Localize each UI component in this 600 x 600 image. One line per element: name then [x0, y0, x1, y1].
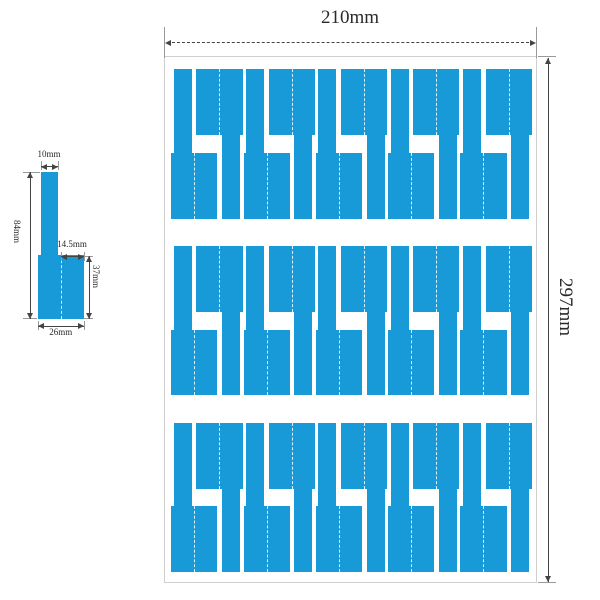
- label-stem: [294, 489, 312, 573]
- label-stem: [222, 312, 240, 396]
- fold-line: [509, 246, 510, 312]
- fold-line: [219, 69, 220, 135]
- dim-label-sheet-width: 210mm: [285, 8, 415, 29]
- fold-line: [339, 330, 340, 396]
- label-sheet-content: [165, 57, 536, 582]
- arrowhead-left-icon: [165, 40, 171, 46]
- cable-label-up: [413, 69, 459, 218]
- dimension-line-84mm: [30, 172, 31, 319]
- label-stem: [222, 135, 240, 219]
- fold-line: [364, 69, 365, 135]
- cable-label-up: [341, 423, 387, 572]
- label-stem: [463, 246, 481, 330]
- witness-tick: [84, 321, 85, 330]
- fold-line: [219, 423, 220, 489]
- label-stem: [439, 312, 457, 396]
- label-stem: [367, 135, 385, 219]
- cable-label-up: [486, 246, 532, 395]
- label-stem: [246, 246, 264, 330]
- cable-label-up: [196, 423, 242, 572]
- fold-line: [411, 153, 412, 219]
- fold-line: [436, 246, 437, 312]
- label-stem: [463, 69, 481, 153]
- fold-line: [339, 153, 340, 219]
- label-sheet: [164, 56, 537, 583]
- cable-label-up: [486, 423, 532, 572]
- dimension-line-210mm: [167, 42, 534, 43]
- label-stem: [318, 246, 336, 330]
- label-stem: [391, 69, 409, 153]
- cable-label-up: [196, 69, 242, 218]
- label-stem: [391, 423, 409, 507]
- label-stem: [463, 423, 481, 507]
- cable-label-up: [269, 69, 315, 218]
- cable-label-up: [269, 246, 315, 395]
- dimension-line-297mm: [548, 58, 549, 582]
- cable-label-up: [413, 246, 459, 395]
- fold-line: [483, 506, 484, 572]
- witness-tick: [58, 161, 59, 170]
- fold-line: [483, 330, 484, 396]
- label-stem: [511, 312, 529, 396]
- label-stem: [367, 489, 385, 573]
- cable-label-up: [269, 423, 315, 572]
- fold-line: [194, 506, 195, 572]
- arrowhead-left-icon: [61, 254, 67, 260]
- arrowhead-up-icon: [86, 256, 92, 262]
- label-stem: [174, 423, 192, 507]
- arrowhead-right-icon: [52, 164, 58, 170]
- label-stem: [294, 312, 312, 396]
- label-stem: [174, 246, 192, 330]
- label-stem: [439, 489, 457, 573]
- fold-line: [61, 255, 62, 320]
- label-stem: [511, 135, 529, 219]
- cable-label-up: [196, 246, 242, 395]
- fold-line: [339, 506, 340, 572]
- label-stem: [511, 489, 529, 573]
- label-stem: [294, 135, 312, 219]
- dim-label-flag-width: 26mm: [38, 328, 84, 338]
- arrowhead-up-icon: [27, 172, 33, 178]
- fold-line: [364, 423, 365, 489]
- arrowhead-left-icon: [41, 164, 47, 170]
- cable-label-up: [341, 246, 387, 395]
- arrowhead-right-icon: [78, 254, 84, 260]
- dim-label-stem-to-edge: 14.5mm: [50, 240, 94, 250]
- fold-line: [292, 246, 293, 312]
- fold-line: [292, 423, 293, 489]
- label-stem: [391, 246, 409, 330]
- fold-line: [509, 69, 510, 135]
- fold-line: [292, 69, 293, 135]
- fold-line: [219, 246, 220, 312]
- cable-label-up: [486, 69, 532, 218]
- label-stem: [246, 423, 264, 507]
- arrowhead-down-icon: [27, 313, 33, 319]
- label-stem: [318, 69, 336, 153]
- fold-line: [411, 330, 412, 396]
- arrowhead-down-icon: [86, 313, 92, 319]
- fold-line: [411, 506, 412, 572]
- dim-label-stem-width: 10mm: [27, 150, 71, 160]
- dim-label-sheet-height: 297mm: [554, 278, 575, 348]
- fold-line: [483, 153, 484, 219]
- fold-line: [194, 330, 195, 396]
- fold-line: [364, 246, 365, 312]
- label-stem: [222, 489, 240, 573]
- fold-line: [267, 330, 268, 396]
- label-stem: [318, 423, 336, 507]
- witness-tick: [538, 582, 556, 583]
- witness-tick: [538, 56, 556, 57]
- fold-line: [267, 153, 268, 219]
- witness-tick: [536, 27, 537, 58]
- single-label-diagram: 10mm 84mm 14.5mm 37mm 26mm: [0, 0, 130, 360]
- arrowhead-up-icon: [545, 58, 551, 64]
- label-stem: [439, 135, 457, 219]
- fold-line: [509, 423, 510, 489]
- fold-line: [267, 506, 268, 572]
- cable-label-up: [413, 423, 459, 572]
- arrowhead-down-icon: [545, 576, 551, 582]
- cable-label-up: [341, 69, 387, 218]
- fold-line: [436, 69, 437, 135]
- dim-label-total-height: 84mm: [11, 220, 21, 272]
- arrowhead-right-icon: [530, 40, 536, 46]
- dim-label-flag-height: 37mm: [90, 265, 100, 313]
- fold-line: [194, 153, 195, 219]
- label-stem: [174, 69, 192, 153]
- fold-line: [436, 423, 437, 489]
- label-stem: [246, 69, 264, 153]
- label-stem: [367, 312, 385, 396]
